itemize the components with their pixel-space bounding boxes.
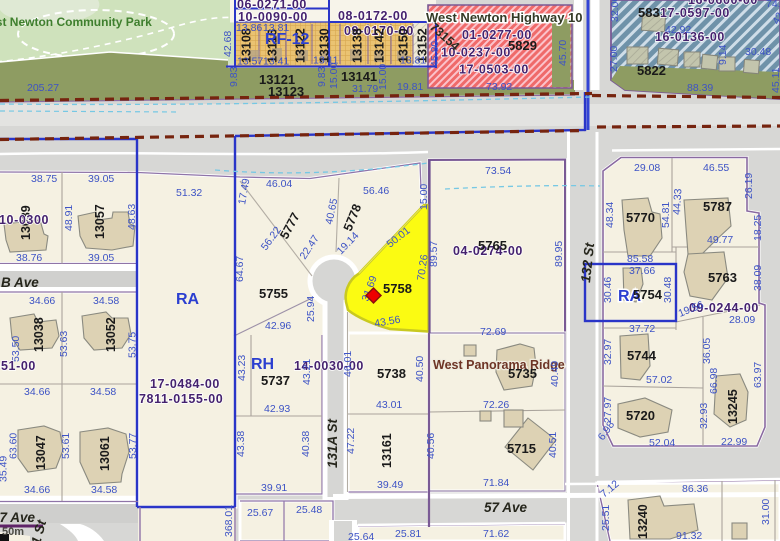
svg-text:57.02: 57.02 <box>646 374 672 386</box>
svg-text:10-0300: 10-0300 <box>0 213 49 227</box>
svg-text:13061: 13061 <box>98 436 112 471</box>
svg-text:71.84: 71.84 <box>483 477 509 489</box>
svg-text:25.67: 25.67 <box>247 507 273 519</box>
svg-text:13123: 13123 <box>268 84 304 99</box>
svg-text:5754: 5754 <box>633 287 663 302</box>
svg-text:17-0597-00: 17-0597-00 <box>660 6 730 20</box>
svg-text:85.58: 85.58 <box>627 253 653 265</box>
svg-text:63.97: 63.97 <box>752 362 764 388</box>
svg-text:5715: 5715 <box>507 441 536 456</box>
svg-text:40.38: 40.38 <box>300 431 312 457</box>
svg-text:13141: 13141 <box>341 69 377 84</box>
svg-text:26.19: 26.19 <box>743 173 755 199</box>
svg-text:56.46: 56.46 <box>363 185 389 197</box>
svg-text:27.00: 27.00 <box>608 46 620 72</box>
svg-text:West Panorama Ridge: West Panorama Ridge <box>433 358 565 372</box>
svg-text:52.04: 52.04 <box>649 437 675 449</box>
svg-text:73.92: 73.92 <box>486 81 512 93</box>
svg-text:18.25: 18.25 <box>752 215 764 241</box>
svg-text:30.48: 30.48 <box>745 46 771 58</box>
svg-text:13047: 13047 <box>34 435 48 470</box>
svg-text:46.01: 46.01 <box>342 351 354 377</box>
svg-text:22.99: 22.99 <box>721 436 747 448</box>
svg-text:31.79: 31.79 <box>352 83 378 95</box>
svg-text:48.63: 48.63 <box>126 204 138 230</box>
svg-text:48.34: 48.34 <box>604 202 616 228</box>
svg-text:13038: 13038 <box>32 317 46 352</box>
svg-text:15.00: 15.00 <box>328 63 340 89</box>
svg-text:39.91: 39.91 <box>261 482 287 494</box>
svg-text:17-0503-00: 17-0503-00 <box>459 63 529 77</box>
svg-text:31.00: 31.00 <box>760 499 772 525</box>
svg-text:47.22: 47.22 <box>345 428 357 454</box>
svg-text:43.23: 43.23 <box>236 355 248 381</box>
svg-text:25.94: 25.94 <box>305 296 317 322</box>
svg-text:63.60: 63.60 <box>8 433 20 459</box>
svg-text:5822: 5822 <box>637 63 666 78</box>
svg-text:5787: 5787 <box>703 199 732 214</box>
svg-text:15.00: 15.00 <box>418 184 430 210</box>
svg-text:37.72: 37.72 <box>629 323 655 335</box>
svg-text:40.56: 40.56 <box>425 433 437 459</box>
svg-text:West Newton Community Park: West Newton Community Park <box>0 15 152 29</box>
svg-text:51.32: 51.32 <box>176 187 202 199</box>
svg-text:39.05: 39.05 <box>88 252 114 264</box>
svg-text:B Ave: B Ave <box>1 275 39 290</box>
svg-text:91.32: 91.32 <box>676 530 702 541</box>
svg-text:30.48: 30.48 <box>662 277 674 303</box>
svg-text:35.49: 35.49 <box>0 456 10 482</box>
svg-text:13138: 13138 <box>351 28 365 63</box>
svg-text:17-0484-00: 17-0484-00 <box>150 377 220 391</box>
svg-text:RH: RH <box>251 356 274 373</box>
svg-text:89.57: 89.57 <box>428 241 440 267</box>
svg-text:16-0600-00: 16-0600-00 <box>688 0 758 7</box>
svg-text:15.00: 15.00 <box>377 64 389 90</box>
svg-text:72.69: 72.69 <box>480 326 506 338</box>
svg-text:46.04: 46.04 <box>266 178 292 190</box>
svg-text:5744: 5744 <box>627 348 657 363</box>
svg-text:42.68: 42.68 <box>222 31 234 57</box>
svg-text:34.58: 34.58 <box>90 386 116 398</box>
svg-text:34.66: 34.66 <box>29 295 55 307</box>
svg-text:5758: 5758 <box>383 281 412 296</box>
svg-text:64.67: 64.67 <box>234 256 246 282</box>
svg-text:32.06: 32.06 <box>609 0 621 22</box>
svg-text:38.09: 38.09 <box>752 265 764 291</box>
svg-text:25.48: 25.48 <box>296 504 322 516</box>
svg-text:86.36: 86.36 <box>682 483 708 495</box>
svg-text:45.70: 45.70 <box>557 40 569 66</box>
svg-text:5737: 5737 <box>261 373 290 388</box>
svg-text:40.50: 40.50 <box>414 356 426 382</box>
svg-text:66.98: 66.98 <box>708 368 720 394</box>
svg-text:25.81: 25.81 <box>395 528 421 540</box>
svg-text:13142: 13142 <box>373 28 387 63</box>
svg-text:25.64: 25.64 <box>348 531 374 541</box>
svg-text:13.57: 13.57 <box>237 56 263 68</box>
svg-text:29.08: 29.08 <box>634 162 660 174</box>
svg-text:13052: 13052 <box>104 317 118 352</box>
svg-text:27.97: 27.97 <box>602 397 614 423</box>
svg-text:32.93: 32.93 <box>698 403 710 429</box>
svg-text:13.81: 13.81 <box>263 22 289 34</box>
svg-text:53.61: 53.61 <box>60 433 72 459</box>
svg-text:89.95: 89.95 <box>553 241 565 267</box>
svg-text:13.81: 13.81 <box>400 55 426 67</box>
svg-text:38.76: 38.76 <box>16 252 42 264</box>
svg-text:48.91: 48.91 <box>63 205 75 231</box>
svg-text:5738: 5738 <box>377 366 406 381</box>
svg-text:13057: 13057 <box>93 204 107 239</box>
svg-text:53.75: 53.75 <box>127 332 139 358</box>
svg-text:205.27: 205.27 <box>27 82 59 94</box>
svg-text:5720: 5720 <box>626 408 655 423</box>
svg-text:32.97: 32.97 <box>602 339 614 365</box>
svg-text:72.26: 72.26 <box>483 399 509 411</box>
svg-text:45.11: 45.11 <box>770 67 780 93</box>
svg-text:43.21: 43.21 <box>301 359 313 385</box>
svg-text:37.66: 37.66 <box>629 265 655 277</box>
svg-text:5829: 5829 <box>508 38 537 53</box>
svg-text:42.93: 42.93 <box>264 403 290 415</box>
svg-text:50m: 50m <box>2 526 24 538</box>
svg-text:08-0172-00: 08-0172-00 <box>338 9 408 23</box>
svg-text:13161: 13161 <box>380 433 394 468</box>
svg-text:34.58: 34.58 <box>93 295 119 307</box>
svg-text:57 Ave: 57 Ave <box>484 500 528 515</box>
svg-text:40.51: 40.51 <box>547 432 559 458</box>
svg-text:38.75: 38.75 <box>31 173 57 185</box>
svg-text:34.58: 34.58 <box>91 484 117 496</box>
svg-text:45.80: 45.80 <box>429 41 441 67</box>
svg-text:28.09: 28.09 <box>729 314 755 326</box>
svg-text:RA: RA <box>176 291 200 308</box>
svg-text:13.86: 13.86 <box>236 22 262 34</box>
svg-text:36.05: 36.05 <box>701 338 713 364</box>
svg-text:9.14: 9.14 <box>717 44 729 65</box>
svg-text:5735: 5735 <box>508 366 537 381</box>
svg-text:5763: 5763 <box>708 270 737 285</box>
svg-text:71.62: 71.62 <box>483 528 509 540</box>
svg-text:25.51: 25.51 <box>600 505 612 531</box>
svg-text:10-0051-00: 10-0051-00 <box>0 359 36 373</box>
svg-text:30.46: 30.46 <box>602 277 614 303</box>
svg-text:368.01: 368.01 <box>223 505 235 537</box>
svg-text:39.05: 39.05 <box>88 173 114 185</box>
svg-text:9.83: 9.83 <box>316 66 328 87</box>
svg-text:73.54: 73.54 <box>485 165 511 177</box>
svg-text:13245: 13245 <box>726 389 740 424</box>
svg-text:19.81: 19.81 <box>397 81 423 93</box>
svg-text:53.77: 53.77 <box>127 433 139 459</box>
svg-text:43.01: 43.01 <box>376 399 402 411</box>
svg-text:46.55: 46.55 <box>703 162 729 174</box>
svg-text:57 Ave: 57 Ave <box>0 510 36 525</box>
svg-text:West Newton Highway 10: West Newton Highway 10 <box>426 10 583 25</box>
svg-text:42.96: 42.96 <box>265 320 291 332</box>
svg-text:34.66: 34.66 <box>24 386 50 398</box>
svg-text:7811-0155-00: 7811-0155-00 <box>139 392 223 406</box>
svg-text:34.66: 34.66 <box>24 484 50 496</box>
svg-text:88.39: 88.39 <box>687 82 713 94</box>
svg-text:5755: 5755 <box>259 286 288 301</box>
svg-text:53.63: 53.63 <box>58 331 70 357</box>
svg-text:43.38: 43.38 <box>235 431 247 457</box>
svg-text:40.49: 40.49 <box>549 361 561 387</box>
svg-text:131A St: 131A St <box>325 418 340 468</box>
svg-text:13.41: 13.41 <box>263 56 289 68</box>
svg-text:9.83: 9.83 <box>228 66 240 87</box>
svg-text:44.33: 44.33 <box>671 188 684 215</box>
svg-text:5770: 5770 <box>626 210 655 225</box>
svg-text:42.92: 42.92 <box>665 24 691 36</box>
svg-text:13240: 13240 <box>636 504 650 539</box>
svg-text:39.49: 39.49 <box>377 479 403 491</box>
svg-text:49.77: 49.77 <box>707 234 733 246</box>
svg-text:5765: 5765 <box>478 238 507 253</box>
